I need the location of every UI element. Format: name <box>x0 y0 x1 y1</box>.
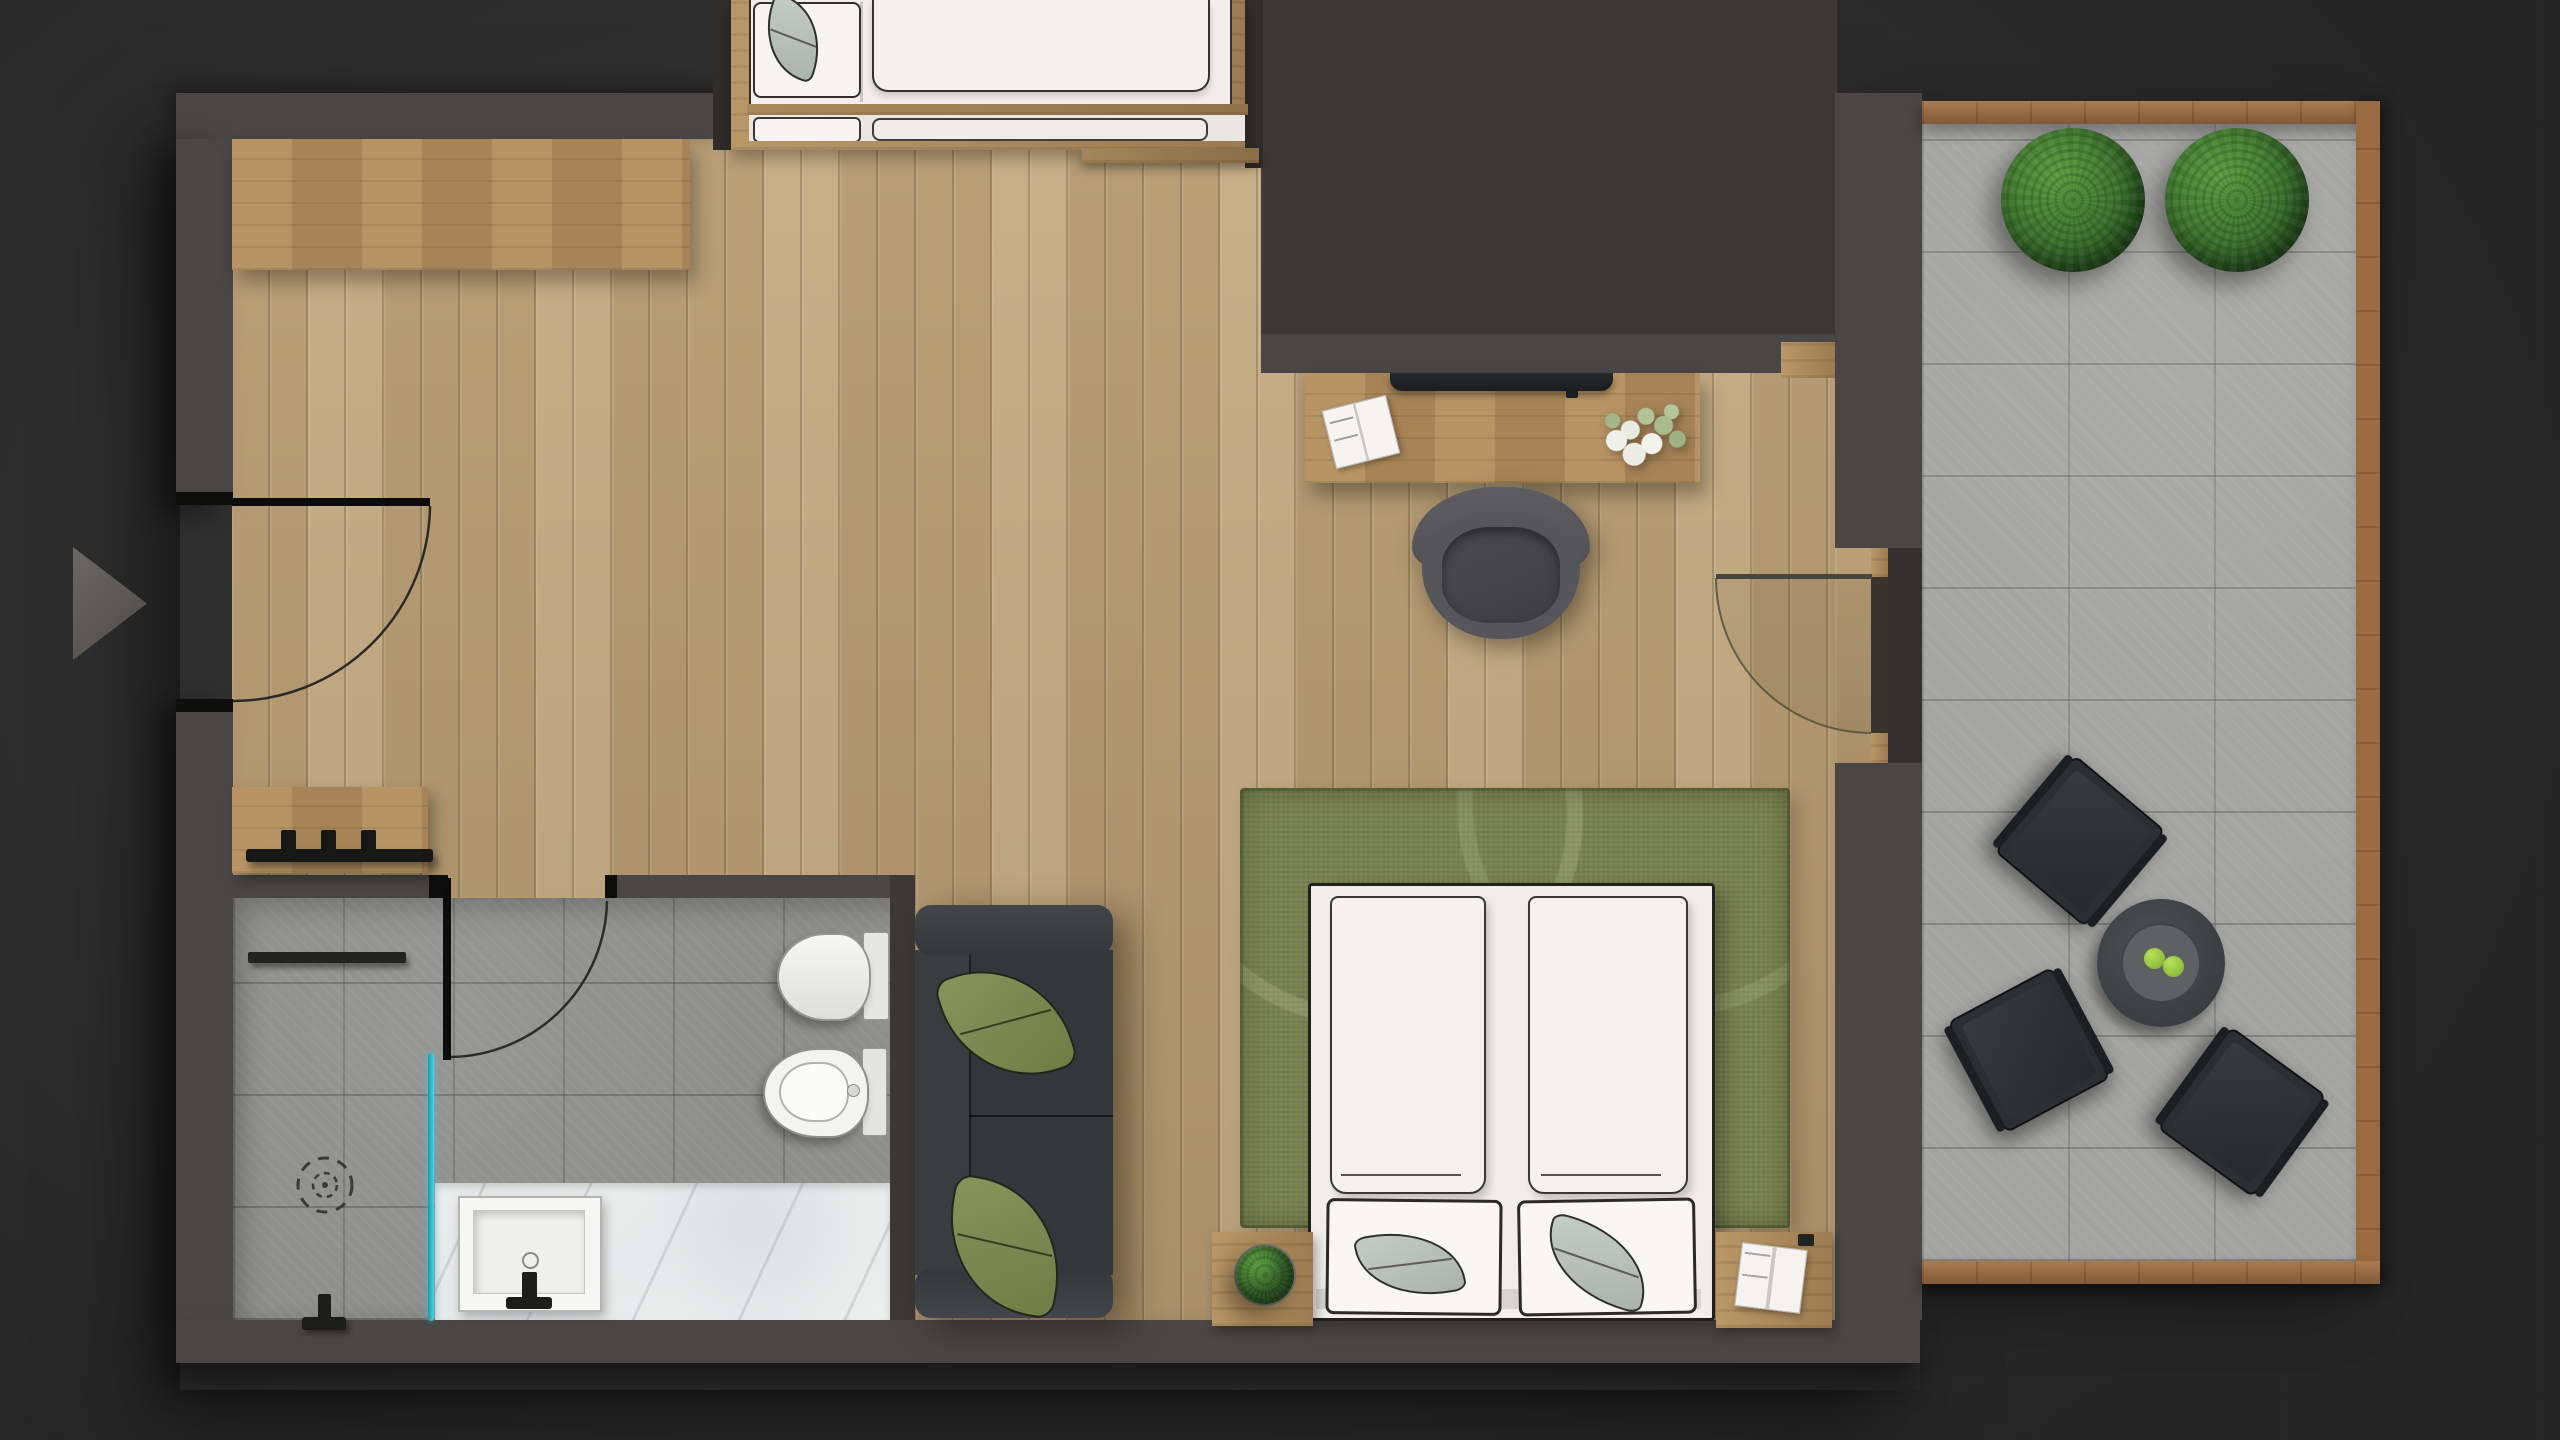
shower-glass-partition <box>428 1053 434 1321</box>
floor-plan <box>0 0 2560 1440</box>
linework-overlay <box>0 0 2560 1440</box>
bathroom-door-leaf <box>443 878 451 1060</box>
balcony-door-leaf <box>1716 574 1872 579</box>
shower-drain-center <box>322 1182 328 1188</box>
entry-door-arc <box>233 506 430 701</box>
bathroom-door-arc <box>451 901 607 1057</box>
entry-door-leaf <box>232 498 430 506</box>
balcony-door-shade <box>1716 578 1871 733</box>
